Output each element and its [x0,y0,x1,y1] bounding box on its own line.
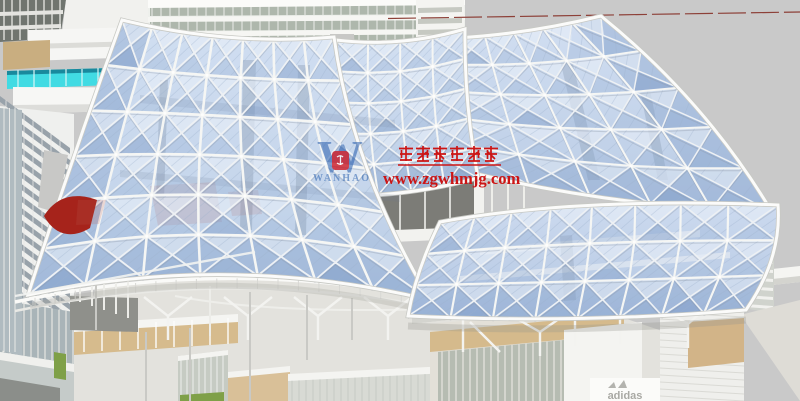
svg-text:WANHAO: WANHAO [313,173,371,184]
svg-text:www.zgwhmjg.com: www.zgwhmjg.com [383,169,521,188]
svg-text:adidas: adidas [608,390,643,401]
